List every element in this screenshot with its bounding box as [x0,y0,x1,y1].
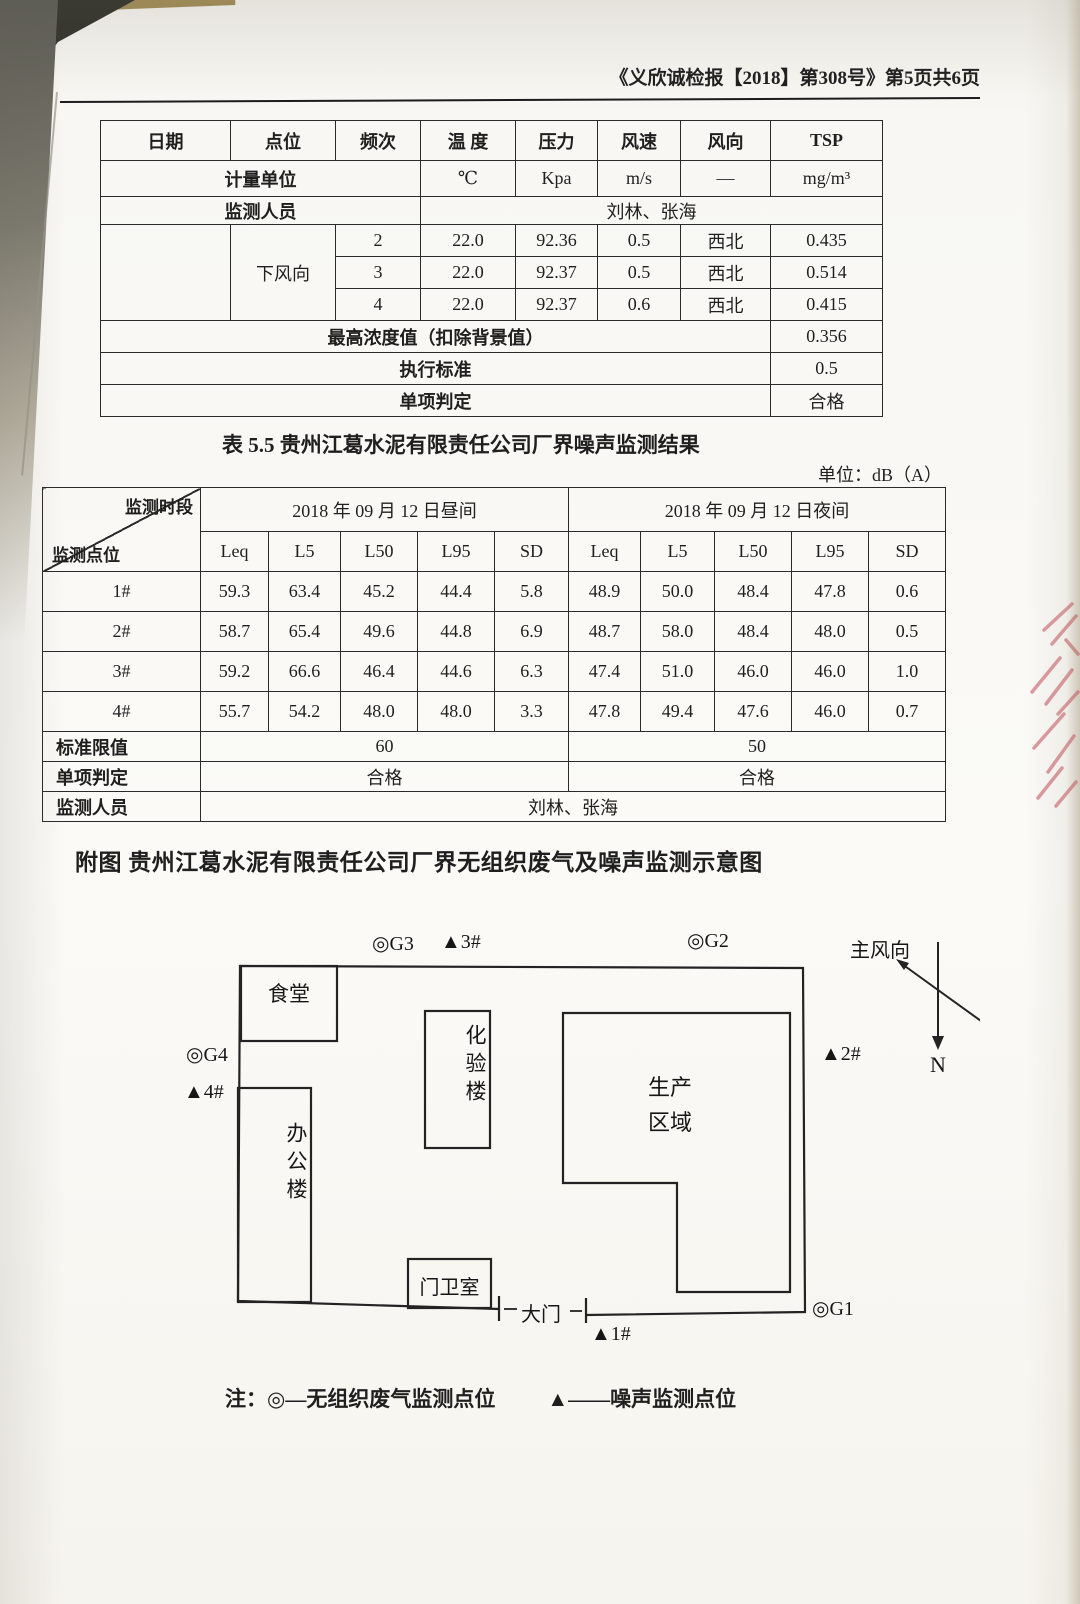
unit-temp: ℃ [421,161,516,197]
subheader: L95 [418,532,495,572]
noise-limit-row: 标准限值 60 50 [43,732,946,762]
cell: 65.4 [269,612,341,652]
cell: 22.0 [421,225,516,257]
col-wind-speed: 风速 [598,121,681,161]
cell: 48.4 [715,572,792,612]
cell: 1.0 [869,652,946,692]
noise-monitoring-table: 监测时段 监测点位 2018 年 09 月 12 日昼间 2018 年 09 月… [42,487,946,822]
noise-data-row: 2# 58.7 65.4 49.6 44.8 6.9 48.7 58.0 48.… [43,612,946,652]
judge-night: 合格 [569,762,946,792]
cell: 50.0 [641,572,715,612]
gate-label: 大门 [521,1298,561,1327]
cell: 48.0 [792,612,869,652]
page-header: 《义欣诚检报【2018】第308号》第5页共6页 [609,63,980,90]
legend-noise-entry: ▲——噪声监测点位 [547,1387,736,1411]
cell: 0.5 [598,257,681,289]
cell: 48.4 [715,612,792,652]
gas-data-row: 下风向 2 22.0 92.36 0.5 西北 0.435 [101,225,883,257]
personnel-value: 刘林、张海 [201,792,946,822]
cell: 44.6 [418,652,495,692]
judge-day: 合格 [201,762,569,792]
judge-value: 合格 [771,385,883,417]
subheader: Leq [201,532,269,572]
cell: 54.2 [269,692,341,732]
cell: 44.8 [418,612,495,652]
unit-label: 计量单位 [101,161,421,197]
subheader: L50 [715,532,792,572]
cell: 0.7 [869,692,946,732]
cell: 48.0 [418,692,495,732]
cell: 92.36 [516,225,598,257]
col-pressure: 压力 [516,121,598,161]
corner-header-cell: 监测时段 监测点位 [43,488,201,572]
col-temperature: 温 度 [421,121,516,161]
cell: 22.0 [421,289,516,321]
marker-g1: ◎G1 [812,1296,854,1321]
gas-personnel-row: 监测人员 刘林、张海 [101,197,883,225]
cell: 58.0 [641,612,715,652]
corner-bottom-label: 监测点位 [52,541,120,566]
cell: 46.4 [341,652,418,692]
cell: 92.37 [516,257,598,289]
marker-noise-1: ▲1# [591,1323,631,1346]
noise-personnel-row: 监测人员 刘林、张海 [43,792,946,822]
max-value: 0.356 [771,321,883,353]
cell: 48.7 [569,612,641,652]
cell: 0.5 [598,225,681,257]
limit-night: 50 [569,732,946,762]
corner-top-label: 监测时段 [125,493,193,518]
unit-tsp: mg/m³ [771,161,883,197]
subheader: L95 [792,532,869,572]
cell: 47.6 [715,692,792,732]
noise-judge-row: 单项判定 合格 合格 [43,762,946,792]
cell: 0.435 [771,225,883,257]
cell: 46.0 [715,652,792,692]
subheader: Leq [569,532,641,572]
standard-value: 0.5 [771,353,883,385]
gas-unit-row: 计量单位 ℃ Kpa m/s — mg/m³ [101,161,883,197]
marker-g3: ◎G3 [372,931,414,956]
cell: 西北 [681,289,771,321]
gas-header-row: 日期 点位 频次 温 度 压力 风速 风向 TSP [101,121,883,161]
cell: 55.7 [201,692,269,732]
cell: 47.8 [569,692,641,732]
cell: 6.3 [495,652,569,692]
col-date: 日期 [101,121,231,161]
cell: 0.415 [771,289,883,321]
cell: 0.6 [598,289,681,321]
col-point: 点位 [231,121,336,161]
personnel-label: 监测人员 [101,197,421,225]
unit-note: 单位：dB（A） [818,461,942,487]
date-cell-empty [101,225,231,321]
limit-day: 60 [201,732,569,762]
cell: 51.0 [641,652,715,692]
cell: 45.2 [341,572,418,612]
site-diagram: 食堂 办公楼 化验楼 生产 区域 门卫室 大门 ◎G3 ▲3# ◎G2 ◎G4 … [150,880,980,1395]
position-downwind: 下风向 [231,225,336,321]
guard-room-label: 门卫室 [408,1271,491,1300]
legend-prefix: 注： [225,1387,267,1411]
cell: 0.5 [869,612,946,652]
cell: 西北 [681,225,771,257]
cell: 58.7 [201,612,269,652]
gas-monitoring-table: 日期 点位 频次 温 度 压力 风速 风向 TSP 计量单位 ℃ Kpa m/s… [100,120,883,417]
cell: 47.4 [569,652,641,692]
cell: 0.514 [771,257,883,289]
header-rule [60,97,980,103]
point-label: 4# [43,692,201,732]
cell: 92.37 [516,289,598,321]
subheader: L50 [341,532,418,572]
gas-max-row: 最高浓度值（扣除背景值） 0.356 [101,321,883,353]
personnel-value: 刘林、张海 [421,197,883,225]
max-label: 最高浓度值（扣除背景值） [101,321,771,353]
canteen-label: 食堂 [241,978,337,1008]
standard-label: 执行标准 [101,353,771,385]
noise-table-caption: 表 5.5 贵州江葛水泥有限责任公司厂界噪声监测结果 [222,429,700,459]
marker-g4: ◎G4 [186,1042,228,1067]
noise-data-row: 4# 55.7 54.2 48.0 48.0 3.3 47.8 49.4 47.… [43,692,946,732]
point-label: 3# [43,652,201,692]
cell: 6.9 [495,612,569,652]
cell: 47.8 [792,572,869,612]
unit-wind-dir: — [681,161,771,197]
legend-note: 注：◎—无组织废气监测点位▲——噪声监测点位 [225,1383,736,1413]
point-label: 1# [43,572,201,612]
cell: 48.0 [341,692,418,732]
subheader: L5 [269,532,341,572]
cell: 44.4 [418,572,495,612]
noise-period-row: 监测时段 监测点位 2018 年 09 月 12 日昼间 2018 年 09 月… [43,488,946,532]
gas-standard-row: 执行标准 0.5 [101,353,883,385]
cell: 0.6 [869,572,946,612]
cell: 2 [336,225,421,257]
col-tsp: TSP [771,121,883,161]
day-period-header: 2018 年 09 月 12 日昼间 [201,488,569,532]
noise-data-row: 1# 59.3 63.4 45.2 44.4 5.8 48.9 50.0 48.… [43,572,946,612]
wind-direction-label: 主风向 [850,934,910,963]
gas-judge-row: 单项判定 合格 [101,385,883,417]
cell: 5.8 [495,572,569,612]
judge-label: 单项判定 [43,762,201,792]
cell: 46.0 [792,652,869,692]
personnel-label: 监测人员 [43,792,201,822]
cell: 4 [336,289,421,321]
figure-title: 附图 贵州江葛水泥有限责任公司厂界无组织废气及噪声监测示意图 [75,843,763,877]
factory-boundary [238,966,805,1315]
legend-gas-entry: ◎—无组织废气监测点位 [267,1387,495,1411]
scanned-report-page: 《义欣诚检报【2018】第308号》第5页共6页 日期 点位 频次 温 度 压力… [0,0,1080,1604]
cell: 66.6 [269,652,341,692]
limit-label: 标准限值 [43,732,201,762]
marker-noise-2: ▲2# [821,1043,861,1066]
subheader: L5 [641,532,715,572]
office-label: 办公楼 [238,1122,311,1206]
night-period-header: 2018 年 09 月 12 日夜间 [569,488,946,532]
cell: 3.3 [495,692,569,732]
production-area-outline [563,1013,790,1292]
marker-g2: ◎G2 [687,928,729,953]
judge-label: 单项判定 [101,385,771,417]
marker-noise-3: ▲3# [441,931,481,954]
subheader: SD [495,532,569,572]
cell: 48.9 [569,572,641,612]
unit-wind-speed: m/s [598,161,681,197]
cell: 西北 [681,257,771,289]
col-wind-dir: 风向 [681,121,771,161]
unit-pressure: Kpa [516,161,598,197]
subheader: SD [869,532,946,572]
noise-data-row: 3# 59.2 66.6 46.4 44.6 6.3 47.4 51.0 46.… [43,652,946,692]
wind-arrow-line [902,964,980,1021]
cell: 49.4 [641,692,715,732]
production-area-label: 生产 区域 [595,1070,745,1140]
cell: 3 [336,257,421,289]
cell: 63.4 [269,572,341,612]
north-label: N [930,1052,946,1078]
marker-noise-4: ▲4# [184,1081,224,1104]
cell: 59.3 [201,572,269,612]
lab-label: 化验楼 [425,1024,490,1108]
cell: 22.0 [421,257,516,289]
red-seal-artifact [1008,596,1080,811]
cell: 46.0 [792,692,869,732]
cell: 49.6 [341,612,418,652]
point-label: 2# [43,612,201,652]
col-frequency: 频次 [336,121,421,161]
north-arrowhead [932,1036,944,1050]
cell: 59.2 [201,652,269,692]
